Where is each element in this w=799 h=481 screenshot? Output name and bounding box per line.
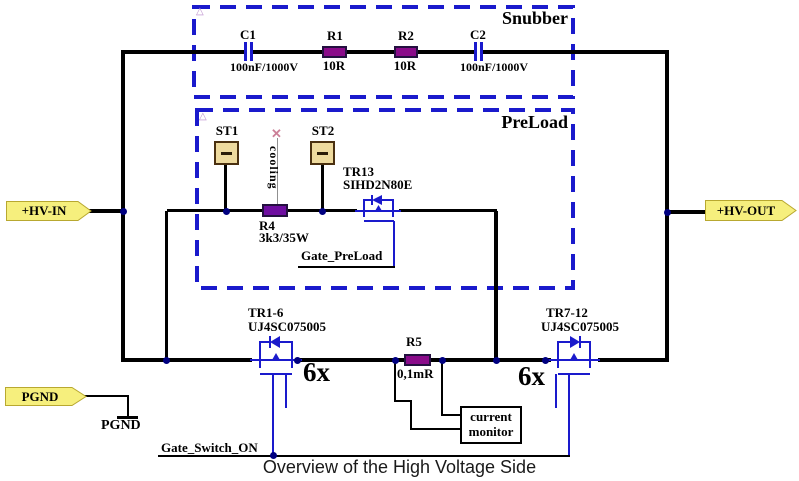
wire-preload-return <box>494 211 498 360</box>
thermal-switch-st1 <box>214 141 239 165</box>
tr7-12-part: UJ4SC075005 <box>541 320 619 334</box>
wire <box>253 50 322 54</box>
sense-wire <box>394 362 396 402</box>
snubber-title: Snubber <box>490 8 568 29</box>
junction-dot <box>664 209 671 216</box>
junction-dot <box>493 357 500 364</box>
tr1-6-part: UJ4SC075005 <box>248 320 326 334</box>
ground-label: PGND <box>101 419 141 434</box>
junction-dot <box>163 357 170 364</box>
tr7-12-count: 6x <box>518 361 545 392</box>
capacitor-c2-plate <box>480 42 483 61</box>
c2-value: 100nF/1000V <box>450 61 538 74</box>
junction-dot <box>294 357 301 364</box>
junction-dot <box>223 208 230 215</box>
resistor-r2 <box>394 46 418 58</box>
sense-wire <box>441 362 443 416</box>
mosfet-tr13-icon <box>355 194 401 230</box>
tr7-12-gate-lead <box>568 374 570 456</box>
hv-out-tag: +HV-OUT <box>707 203 785 219</box>
wire <box>123 50 244 54</box>
wire-st2-lead <box>321 164 324 211</box>
preload-title: PreLoad <box>496 112 568 133</box>
mosfet-tr7-12-icon <box>548 334 600 380</box>
tr13-part: SIHD2N80E <box>343 178 412 192</box>
wire <box>598 358 669 362</box>
wire-left-bus <box>121 50 125 362</box>
tr1-6-gate-lead <box>272 374 274 456</box>
tr7-12-ref: TR7-12 <box>546 306 588 320</box>
thermal-switch-st2 <box>310 141 335 165</box>
r1-ref: R1 <box>321 29 349 43</box>
schematic-high-voltage-side: △ △ ✕ <box>0 0 799 481</box>
hv-in-tag: +HV-IN <box>8 203 80 219</box>
pgnd-lead <box>84 395 128 397</box>
sense-wire <box>410 400 412 430</box>
delta-marker-icon: △ <box>196 6 204 17</box>
wire-hv-in-lead <box>88 209 123 213</box>
c2-ref: C2 <box>463 28 493 42</box>
st1-ref: ST1 <box>211 124 243 138</box>
st2-ref: ST2 <box>307 124 339 138</box>
junction-dot <box>392 357 399 364</box>
sense-wire <box>410 428 460 430</box>
r1-value: 10R <box>319 59 349 73</box>
minus-icon <box>317 152 328 155</box>
tr1-6-ref: TR1-6 <box>248 306 283 320</box>
pgnd-tag: PGND <box>7 389 73 405</box>
junction-dot <box>120 208 127 215</box>
wire <box>418 50 474 54</box>
cooling-label: cooling <box>266 146 281 218</box>
resistor-r1 <box>322 46 347 58</box>
cooling-x-icon: ✕ <box>271 126 282 142</box>
current-monitor-label: monitor <box>469 425 514 440</box>
capacitor-c1-plate <box>244 42 247 61</box>
r5-ref: R5 <box>406 335 422 349</box>
r2-value: 10R <box>390 59 420 73</box>
wire-st1-lead <box>224 164 227 211</box>
wire-hv-out-lead <box>669 210 707 214</box>
junction-dot <box>439 357 446 364</box>
current-monitor-label: current <box>470 410 512 425</box>
wire <box>399 209 497 212</box>
c1-value: 100nF/1000V <box>220 61 308 74</box>
wire <box>347 50 395 54</box>
resistor-r5 <box>404 354 431 366</box>
tr1-6-count: 6x <box>303 357 330 388</box>
capacitor-c2-plate <box>474 42 477 61</box>
wire-right-bus <box>665 50 669 362</box>
pgnd-lead <box>127 395 129 417</box>
gate-preload-label: Gate_PreLoad <box>301 249 382 263</box>
r5-value: 0,1mR <box>397 367 433 381</box>
wire-preload-riser <box>165 211 168 360</box>
gate-preload-line <box>298 266 395 268</box>
junction-dot <box>319 208 326 215</box>
diagram-title: Overview of the High Voltage Side <box>0 457 799 478</box>
gate-switch-label: Gate_Switch_ON <box>161 441 258 455</box>
sense-wire <box>441 414 460 416</box>
r2-ref: R2 <box>392 29 420 43</box>
delta-marker-icon: △ <box>199 111 207 122</box>
current-monitor-box: current monitor <box>460 406 522 444</box>
wire <box>123 358 252 362</box>
r4-value: 3k3/35W <box>259 231 309 245</box>
wire <box>483 50 669 54</box>
minus-icon <box>221 152 232 155</box>
capacitor-c1-plate <box>250 42 253 61</box>
c1-ref: C1 <box>233 28 263 42</box>
wire <box>167 209 263 212</box>
